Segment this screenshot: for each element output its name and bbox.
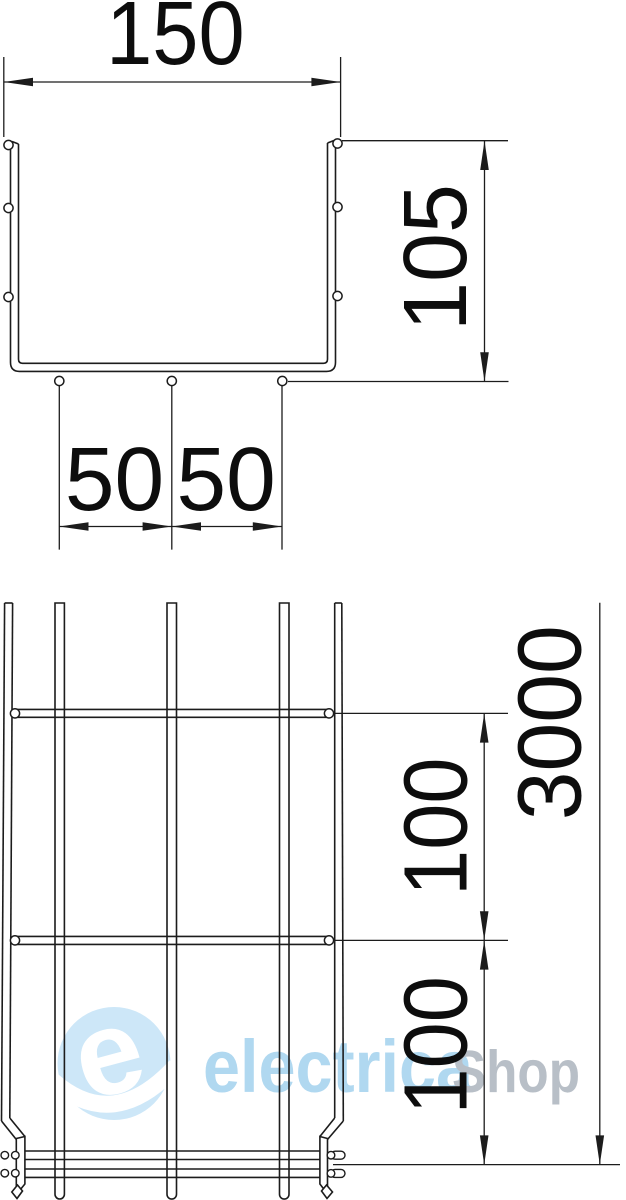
svg-text:100: 100 xyxy=(387,757,487,896)
svg-text:3000: 3000 xyxy=(501,625,601,820)
svg-text:100: 100 xyxy=(387,976,487,1115)
svg-text:50: 50 xyxy=(65,430,164,530)
svg-text:50: 50 xyxy=(176,430,275,530)
svg-text:150: 150 xyxy=(106,0,245,84)
svg-text:105: 105 xyxy=(386,184,486,331)
